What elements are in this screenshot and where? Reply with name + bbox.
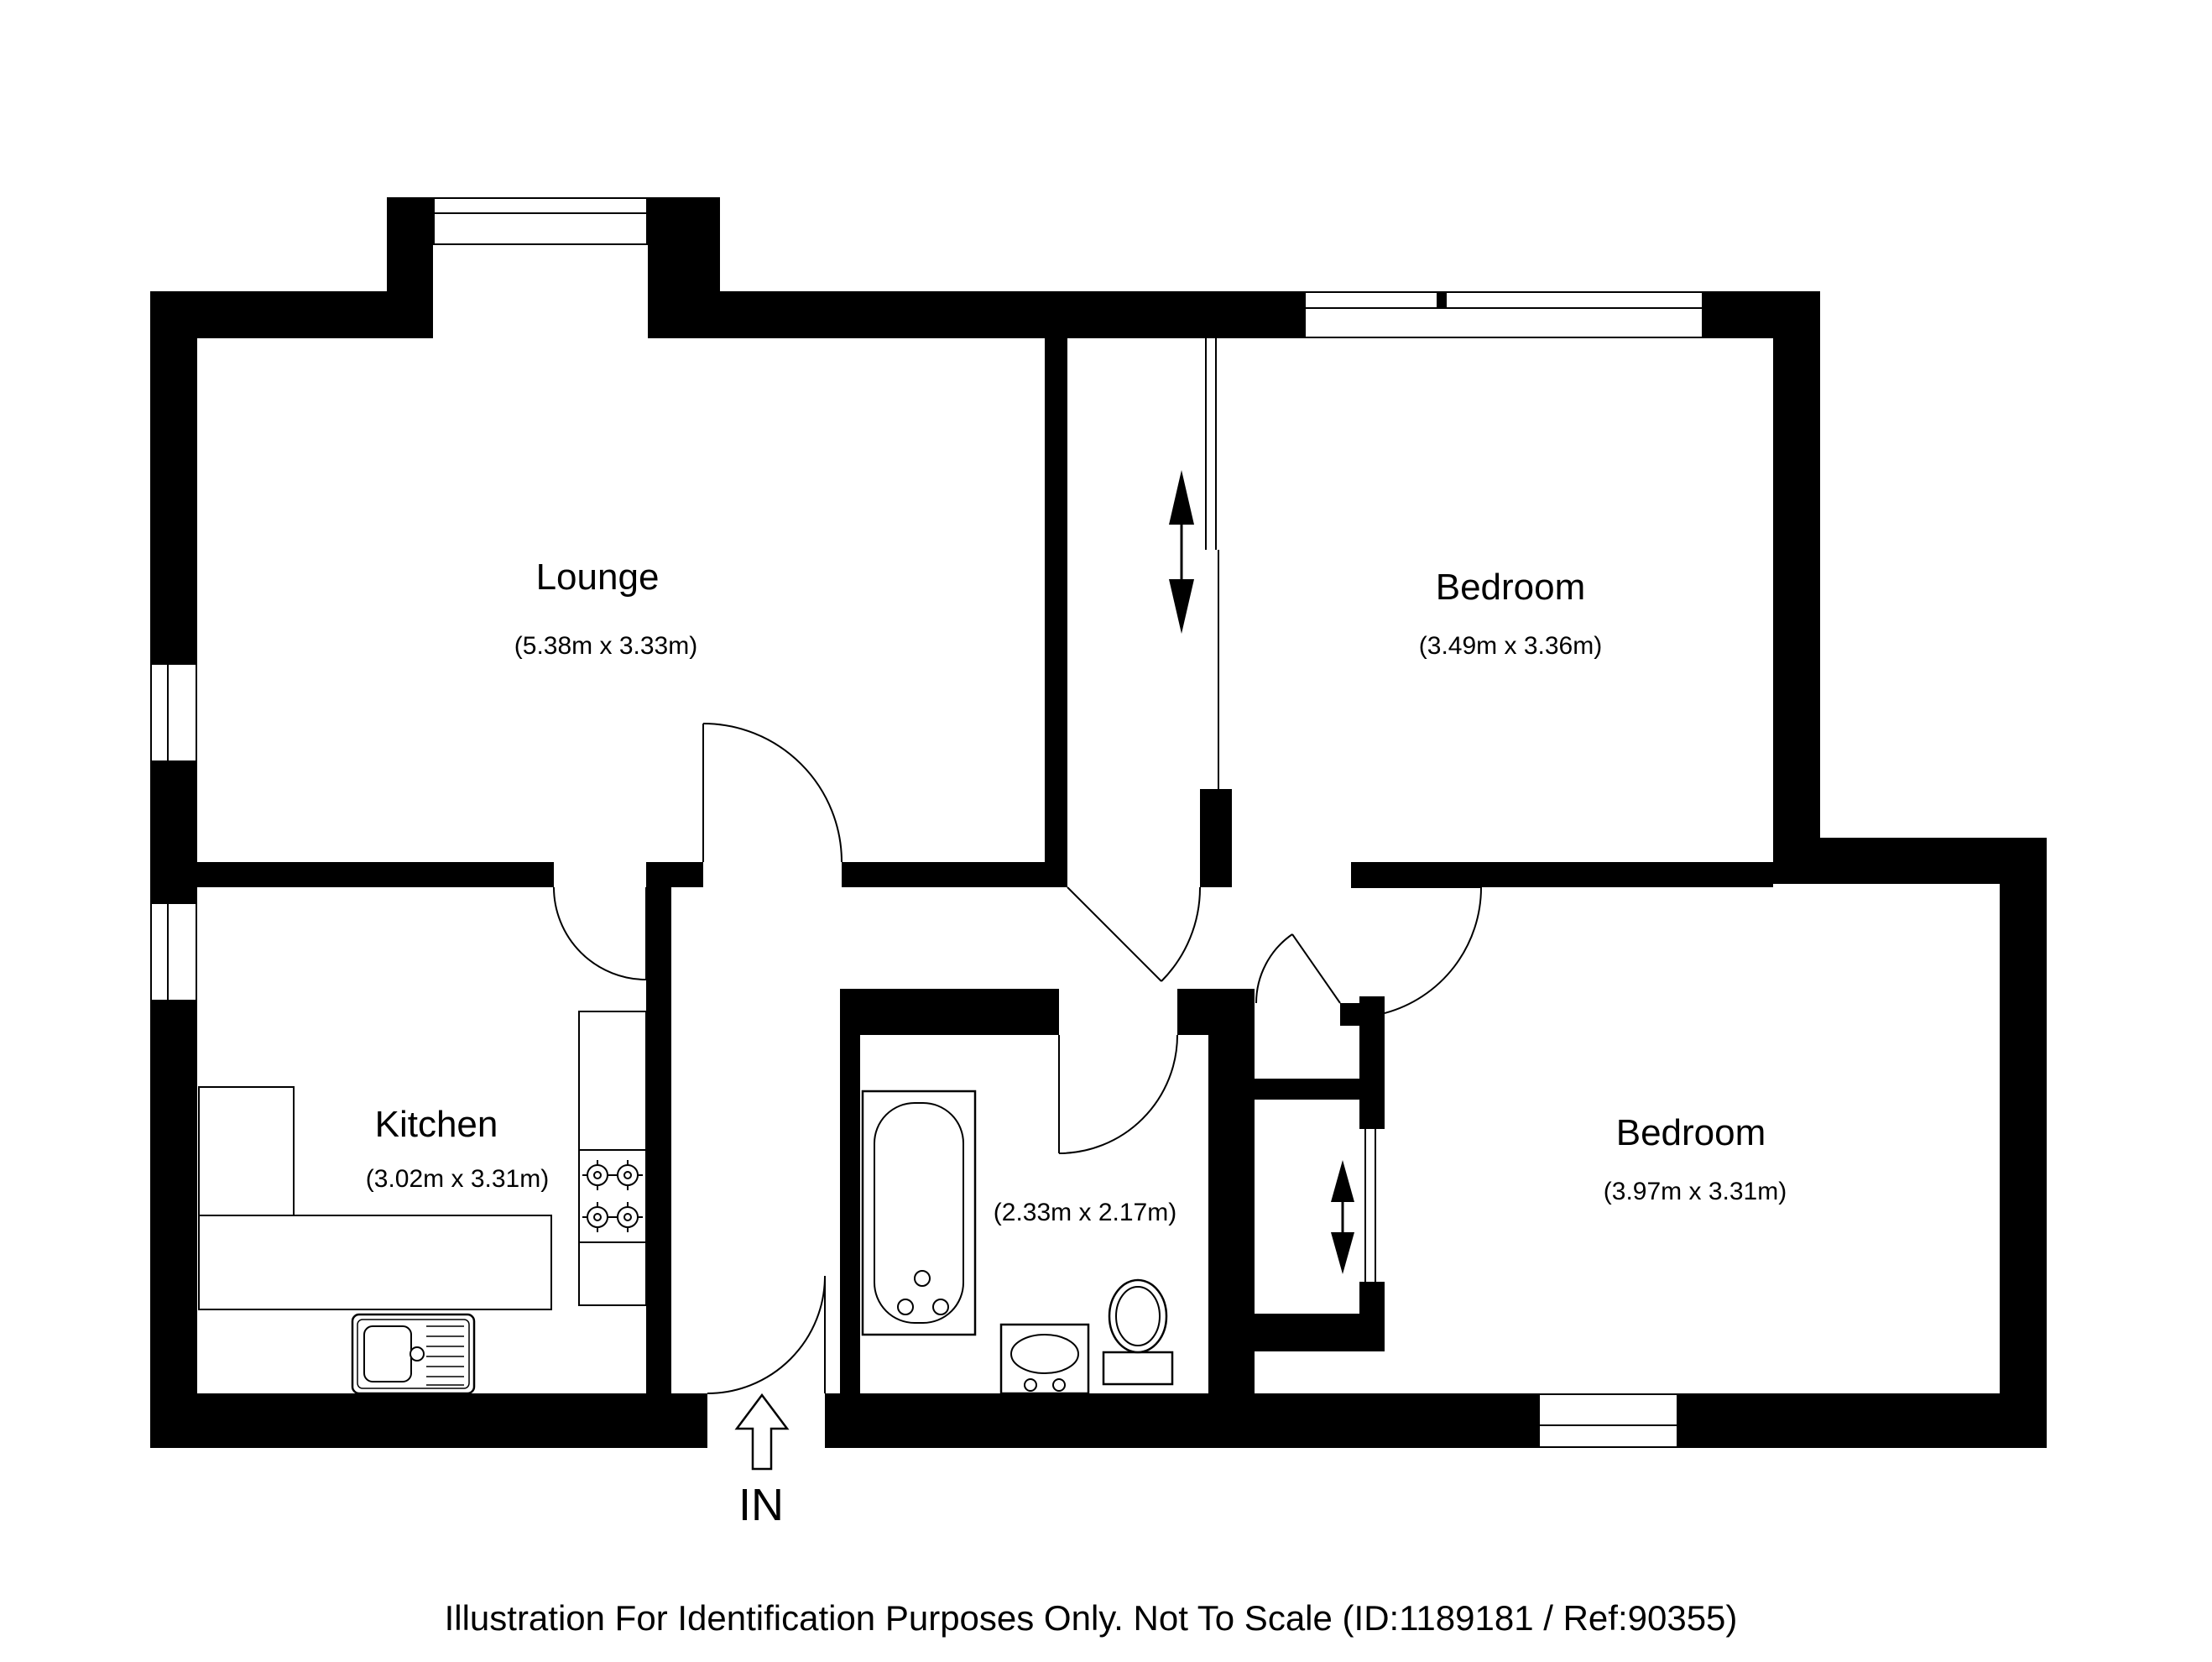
bedroom-top-label: Bedroom — [1436, 567, 1586, 609]
hall-cupboard-door-swing — [1067, 887, 1200, 981]
bathroom-door-swing — [1059, 1035, 1177, 1153]
bedroom-bottom-dims: (3.97m x 3.31m) — [1604, 1178, 1787, 1206]
lounge-dims: (5.38m x 3.33m) — [514, 632, 697, 661]
bedroom-bottom-door-swing — [1256, 934, 1340, 1003]
entrance-door-swing — [707, 1276, 825, 1393]
bedroom-top-door-swing — [1351, 887, 1481, 1013]
bedroom-bottom-label: Bedroom — [1616, 1112, 1766, 1154]
lounge-label: Lounge — [536, 557, 660, 598]
floor-plan: Lounge (5.38m x 3.33m) Bedroom (3.49m x … — [0, 0, 2212, 1662]
kitchen-hob — [579, 1150, 646, 1242]
footer-disclaimer: Illustration For Identification Purposes… — [445, 1598, 1738, 1638]
bedroom-top-dims: (3.49m x 3.36m) — [1419, 632, 1602, 661]
sliding-door-arrows-icon-top — [1169, 470, 1194, 634]
sliding-door-bedroom-top — [1206, 338, 1218, 789]
kitchen-door-swing — [554, 887, 646, 980]
sliding-door-bedroom-bottom — [1365, 1129, 1375, 1282]
bathroom-dims: (2.33m x 2.17m) — [994, 1199, 1176, 1227]
lounge-door-swing — [703, 724, 842, 862]
toilet — [1103, 1280, 1172, 1384]
plan-linework — [0, 0, 2212, 1662]
bathroom-sink — [1001, 1325, 1088, 1393]
entrance-label: IN — [738, 1479, 784, 1531]
kitchen-sink — [352, 1314, 474, 1393]
bathtub — [863, 1091, 975, 1335]
entry-arrow-up-icon — [737, 1395, 787, 1469]
kitchen-label: Kitchen — [375, 1104, 498, 1146]
sliding-door-arrows-icon-bottom — [1331, 1160, 1354, 1274]
kitchen-dims: (3.02m x 3.31m) — [366, 1165, 549, 1194]
